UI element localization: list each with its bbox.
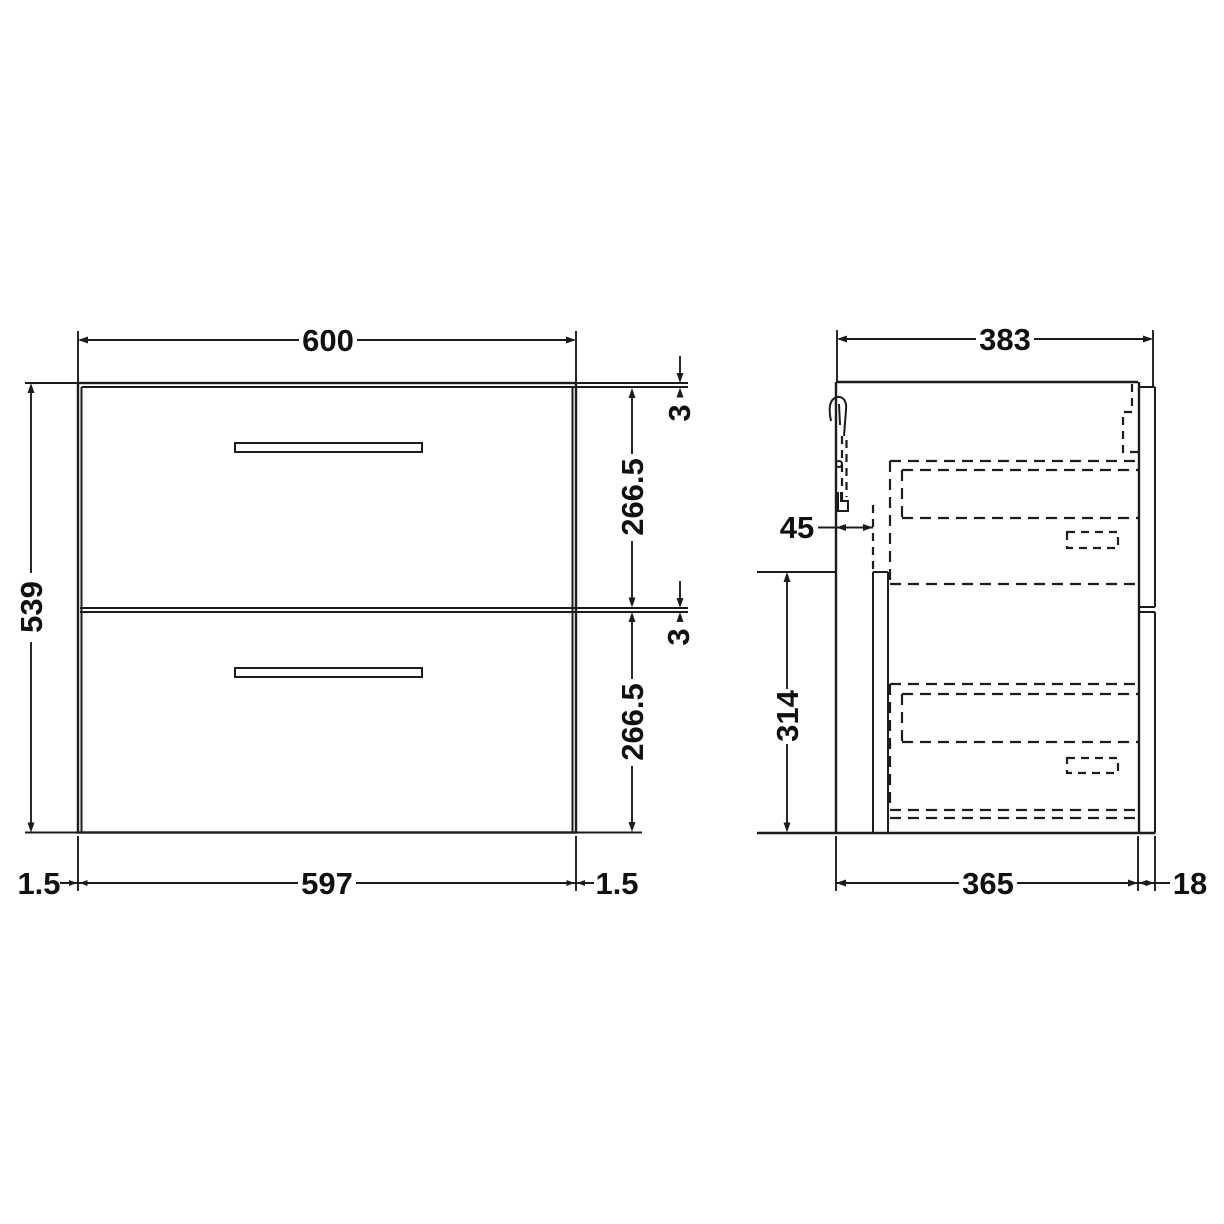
dim-label-18: 18: [1173, 866, 1207, 901]
side-view: 383 45 314 365: [757, 322, 1207, 901]
side-dim-back-void: 45: [780, 510, 873, 545]
hidden-top-rail: [1123, 384, 1139, 452]
dim-label-597: 597: [301, 866, 353, 901]
technical-drawing-page: 600 539 3 266.5 3: [0, 0, 1224, 1224]
dim-label-539: 539: [14, 581, 49, 633]
front-dim-width-top: 600: [78, 323, 576, 382]
lower-handle-hidden: [1067, 758, 1118, 773]
dim-label-edge-right: 1.5: [595, 866, 638, 901]
wall-bracket: [830, 397, 848, 511]
vanity-unit-drawing: 600 539 3 266.5 3: [0, 0, 1224, 1224]
front-dim-bottom-chain: 1.5 597 1.5: [17, 836, 638, 901]
side-dim-depth-top: 383: [837, 322, 1153, 386]
dim-label-600: 600: [302, 323, 354, 358]
bracket-hook: [830, 397, 847, 436]
upper-drawer-handle: [235, 443, 422, 452]
dim-label-365: 365: [962, 866, 1014, 901]
side-outline: [757, 382, 1155, 833]
dim-label-lower-drawer: 266.5: [615, 683, 650, 761]
front-view: 600 539 3 266.5 3: [14, 323, 697, 901]
front-dim-right-chain: 3 266.5 3 266.5: [615, 356, 697, 832]
front-dim-height-left: 539: [14, 383, 49, 833]
lower-drawer-handle: [235, 668, 422, 677]
front-outline: [25, 383, 688, 833]
upper-handle-hidden: [1067, 532, 1118, 548]
side-lower-drawer-hidden: [890, 684, 1139, 818]
side-upper-drawer-hidden: [890, 461, 1139, 584]
dim-label-383: 383: [979, 322, 1031, 357]
dim-label-314: 314: [770, 689, 805, 741]
dim-label-gap-top: 3: [662, 404, 697, 421]
front-drawer-handles: [235, 443, 422, 677]
dim-label-edge-left: 1.5: [17, 866, 60, 901]
dim-label-upper-drawer: 266.5: [615, 458, 650, 536]
dim-label-45: 45: [780, 510, 814, 545]
side-dim-back-panel: 314: [757, 572, 836, 833]
dim-label-gap-mid: 3: [661, 628, 696, 645]
side-dim-bottom-chain: 365 18: [836, 836, 1207, 901]
